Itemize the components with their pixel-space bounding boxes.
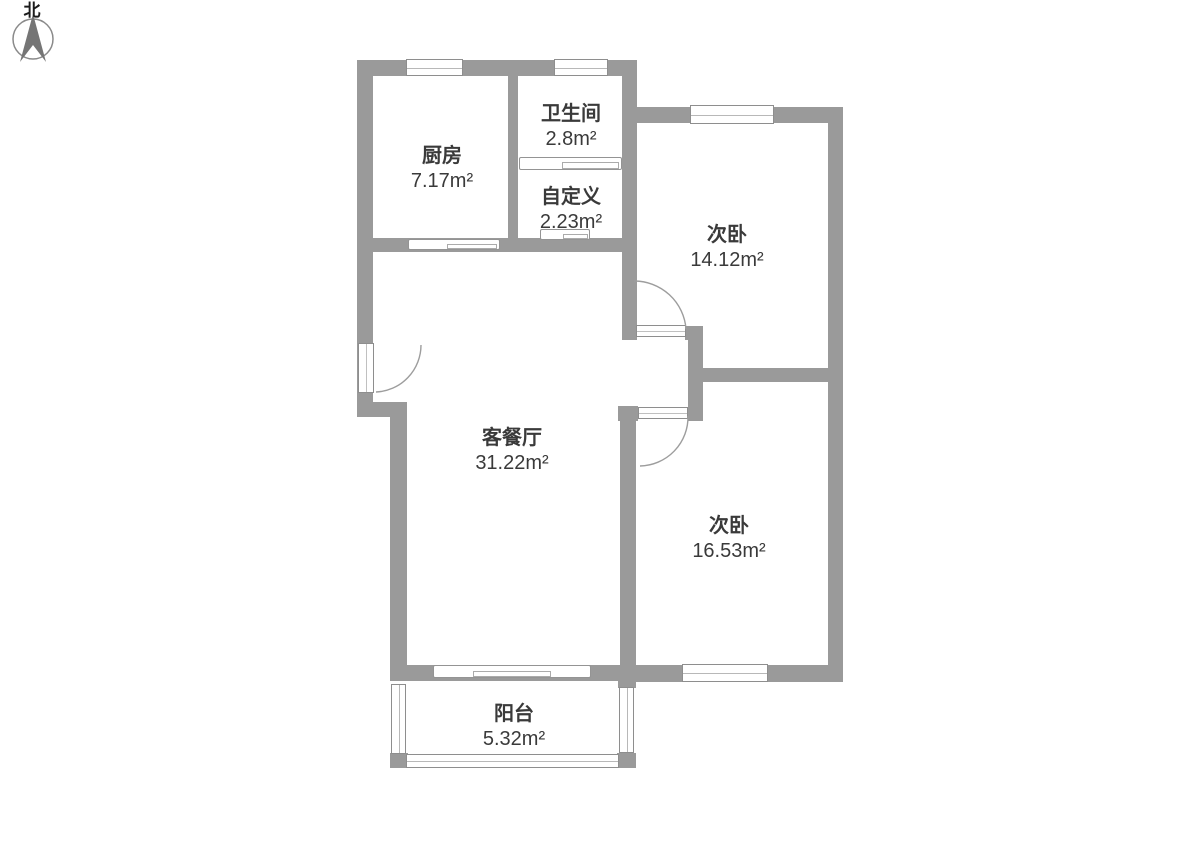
balcony-left-window [391, 684, 406, 754]
wall [828, 107, 843, 682]
room-label-bathroom: 卫生间 2.8m² [541, 102, 601, 152]
compass-north: 北 [10, 2, 58, 68]
bedroom-bottom-door-arc [640, 416, 688, 466]
kitchen-sliding-door [408, 239, 500, 250]
entrance-door-arc [376, 345, 421, 392]
wall [617, 753, 636, 768]
bathroom-custom-sliding-door [519, 157, 622, 170]
bedroom-bottom-door-leaf [638, 407, 688, 419]
balcony-sliding-door [433, 665, 591, 678]
room-label-balcony: 阳台 5.32m² [483, 702, 545, 752]
floor-plan: 北 厨房 7. [0, 0, 1200, 860]
room-label-bedroom-bottom: 次卧 16.53m² [692, 514, 765, 564]
wall [688, 406, 703, 421]
wall [620, 406, 636, 681]
bedroom-bottom-window [682, 664, 768, 682]
entrance-door-leaf [358, 343, 374, 393]
room-label-bedroom-top: 次卧 14.12m² [690, 223, 763, 273]
bathroom-window [554, 59, 608, 76]
bedroom-top-door-arc [634, 281, 686, 329]
wall [622, 60, 637, 340]
bedroom-top-window [690, 105, 774, 124]
balcony-bottom-window [406, 754, 619, 768]
room-label-custom: 自定义 2.23m² [540, 185, 602, 235]
wall [690, 368, 843, 382]
bedroom-top-door-leaf [636, 325, 686, 337]
balcony-right-window [619, 687, 634, 753]
kitchen-window [406, 59, 463, 76]
wall [508, 76, 518, 238]
north-label: 北 [10, 2, 54, 20]
room-label-kitchen: 厨房 7.17m² [411, 144, 473, 194]
wall [390, 402, 407, 681]
room-label-living-dining: 客餐厅 31.22m² [475, 426, 548, 476]
